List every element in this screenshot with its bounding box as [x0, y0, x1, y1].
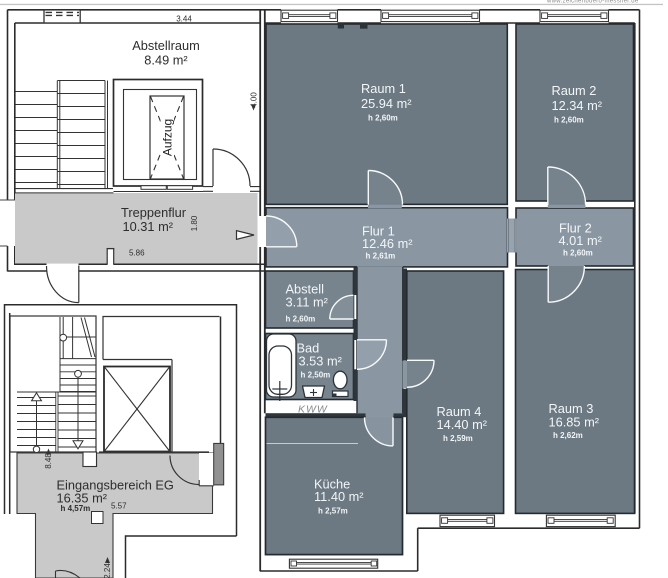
svg-text:h 4,57m: h 4,57m — [61, 504, 91, 513]
svg-text:5.86: 5.86 — [129, 249, 145, 258]
svg-text:8.48: 8.48 — [44, 453, 53, 469]
svg-text:h 2,60m: h 2,60m — [563, 249, 593, 258]
svg-text:h 2,57m: h 2,57m — [318, 507, 348, 516]
svg-text:www.zeichenbuero-messner.de: www.zeichenbuero-messner.de — [546, 0, 639, 5]
svg-text:h 2,60m: h 2,60m — [554, 116, 584, 125]
svg-text:h 2,60m: h 2,60m — [368, 114, 398, 123]
svg-text:h 2,61m: h 2,61m — [366, 252, 396, 261]
svg-text:11.40 m²: 11.40 m² — [314, 489, 364, 504]
svg-text:Raum 1: Raum 1 — [361, 81, 406, 96]
svg-text:1.80: 1.80 — [190, 215, 199, 231]
svg-text:h 2,60m: h 2,60m — [286, 315, 316, 324]
svg-text:h 2,59m: h 2,59m — [443, 434, 473, 443]
svg-text:4.01 m²: 4.01 m² — [559, 233, 603, 248]
svg-text:8.49 m²: 8.49 m² — [144, 53, 188, 68]
svg-text:3.53 m²: 3.53 m² — [299, 354, 343, 369]
svg-text:12.34 m²: 12.34 m² — [552, 98, 603, 113]
svg-text:h 2,62m: h 2,62m — [553, 431, 583, 440]
svg-text:16.85 m²: 16.85 m² — [549, 415, 600, 430]
svg-text:Raum 2: Raum 2 — [552, 83, 597, 98]
svg-text:Treppenflur: Treppenflur — [121, 205, 187, 220]
svg-text:14.40 m²: 14.40 m² — [437, 417, 488, 432]
svg-text:2.24: 2.24 — [103, 563, 112, 578]
svg-text:h 2,50m: h 2,50m — [301, 371, 331, 380]
svg-text:5.57: 5.57 — [111, 502, 127, 511]
svg-text:25.94 m²: 25.94 m² — [361, 96, 412, 111]
svg-text:Aufzug: Aufzug — [161, 119, 175, 156]
svg-text:10.31 m²: 10.31 m² — [123, 219, 174, 234]
svg-text:KWW: KWW — [298, 404, 328, 416]
svg-text:Abstellraum: Abstellraum — [132, 38, 200, 53]
svg-text:3.44: 3.44 — [176, 15, 192, 24]
svg-text:3.11 m²: 3.11 m² — [286, 295, 329, 310]
svg-text:12.46 m²: 12.46 m² — [362, 236, 413, 251]
